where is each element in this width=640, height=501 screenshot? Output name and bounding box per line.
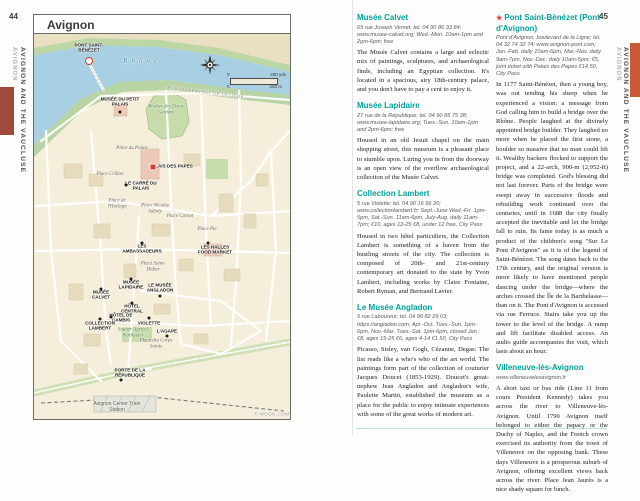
guidebook-spread: { "page": { "left_number": "44", "right_… (0, 0, 640, 436)
map-title-bar: Avignon (34, 15, 290, 34)
map-marker-dot (148, 317, 151, 320)
article-details: 5 rue Laboureur; tel. 04 90 82 29 03; ht… (357, 314, 489, 343)
article-heading: Musée Calvet (357, 13, 489, 23)
map-marker-ring (85, 57, 93, 65)
map-marker-dot (100, 288, 103, 291)
scale-zero-m: 0 (227, 84, 230, 89)
map-marker-dot (125, 184, 128, 187)
map-marker-dot (166, 335, 169, 338)
section-tab-left (0, 87, 14, 135)
map-marker-dot (119, 111, 122, 114)
article: Le Musée Angladon5 rue Laboureur; tel. 0… (357, 303, 489, 419)
text-column-1: Musée Calvet65 rue Joseph Vernet; tel. 0… (357, 13, 489, 426)
map-title: Avignon (47, 18, 95, 32)
text-column-2: ★Pont Saint-Bénézet (Pont d'Avignon)Pont… (496, 13, 608, 501)
scale-m: 200 m (269, 84, 282, 89)
map-marker-dot (99, 318, 102, 321)
article-details: 27 rue de la République; tel. 04 90 85 7… (357, 113, 489, 135)
map-marker-dot (141, 242, 144, 245)
article-heading: ★Pont Saint-Bénézet (Pont d'Avignon) (496, 13, 608, 33)
article-heading: Collection Lambert (357, 189, 489, 199)
sidebar-section-left: AVIGNON AND THE VAUCLUSE (19, 47, 26, 173)
article: Musée Calvet65 rue Joseph Vernet; tel. 0… (357, 13, 489, 94)
map-marker-red (150, 164, 157, 171)
article-heading: Le Musée Angladon (357, 303, 489, 313)
article: Collection Lambert5 rue Violette; tel. 0… (357, 189, 489, 296)
map-marker-dot (110, 316, 113, 319)
avignon-map: Avignon (33, 14, 291, 420)
map-marker-dot (131, 302, 134, 305)
article: Villeneuve-lès-Avignonwww.villeneuvelesa… (496, 363, 608, 494)
section-tab-right (630, 43, 640, 97)
article: ★Pont Saint-Bénézet (Pont d'Avignon)Pont… (496, 13, 608, 356)
page-number-left: 44 (9, 12, 18, 21)
article-details: 5 rue Violette; tel. 04 90 16 56 20; www… (357, 201, 489, 230)
page-gutter (352, 0, 353, 436)
article-body: Housed in an old Jesuit chapel on the ma… (357, 136, 489, 182)
top-sight-star-icon: ★ (496, 15, 502, 22)
article-body: Housed in two hôtel particuliers, the Co… (357, 232, 489, 296)
map-marker-dot (130, 278, 133, 281)
sidebar-subsection-left: AVIGNON (11, 47, 17, 82)
article-body: In 1177 Saint-Bénézet, then a young boy,… (496, 80, 608, 356)
scale-zero-yds: 0 (227, 72, 230, 77)
article-details: 65 rue Joseph Vernet; tel. 04 90 86 33 8… (357, 25, 489, 47)
article-heading: Musée Lapidaire (357, 101, 489, 111)
article-details: Pont d'Avignon, boulevard de la Ligne; t… (496, 35, 608, 78)
scale-yds: 200 yds (270, 72, 286, 77)
map-canvas: 0 200 yds 0 200 m PONT SAINT-BÉNÉZETRhôn… (34, 34, 290, 419)
map-marker-dot (207, 242, 210, 245)
article-body: The Musée Calvet contains a large and ec… (357, 48, 489, 94)
map-marker-dot (159, 295, 162, 298)
article-heading: Villeneuve-lès-Avignon (496, 363, 608, 373)
article-body: Picasso, Sisley, van Gogh, Cézanne, Dega… (357, 345, 489, 419)
sidebar-subsection-right: AVIGNON (615, 47, 621, 82)
map-scale-bar: 0 200 yds 0 200 m (224, 72, 286, 90)
sidebar-section-right: AVIGNON AND THE VAUCLUSE (622, 47, 629, 173)
article: Musée Lapidaire27 rue de la République; … (357, 101, 489, 182)
article-details: www.villeneuvelesavignon.fr (496, 375, 608, 382)
article-body: A short taxi or bus ride (Line 11 from c… (496, 384, 608, 494)
map-marker-dot (120, 379, 123, 382)
map-geography (34, 34, 290, 419)
